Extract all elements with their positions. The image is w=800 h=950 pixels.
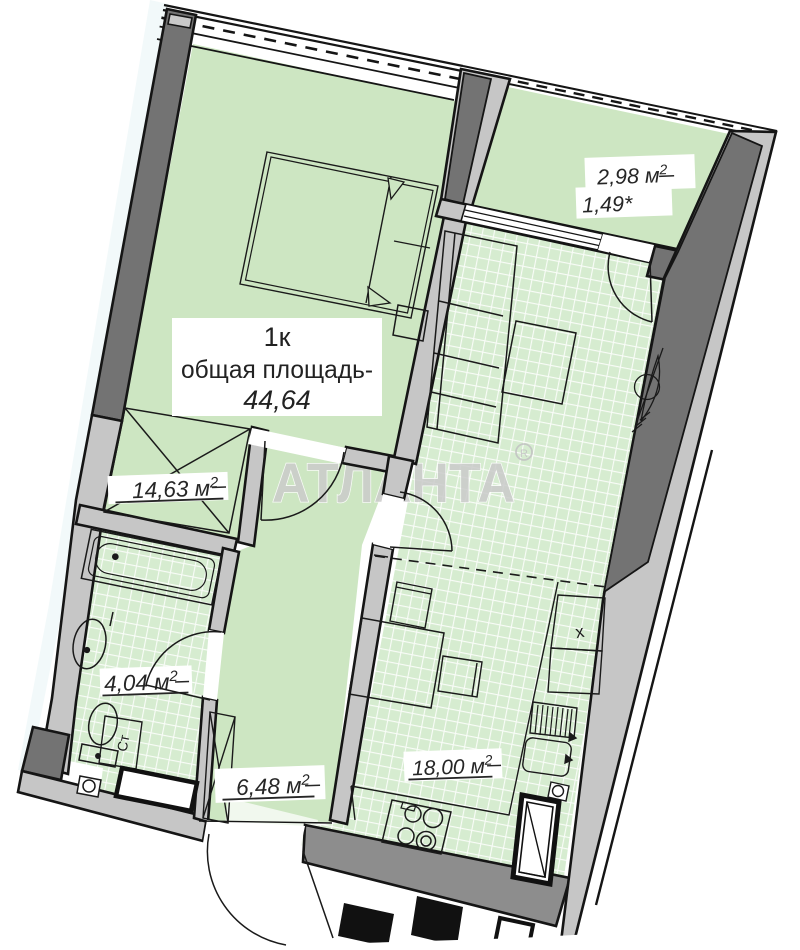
svg-text:44,64: 44,64 [243, 385, 311, 415]
svg-text:1,49*: 1,49* [582, 192, 634, 218]
svg-text:общая площадь-: общая площадь- [181, 356, 373, 384]
svg-text:4,04 м2: 4,04 м2 [104, 668, 179, 697]
svg-text:1к: 1к [264, 322, 291, 352]
svg-text:6,48 м2: 6,48 м2 [236, 772, 311, 801]
svg-text:R: R [520, 448, 528, 460]
